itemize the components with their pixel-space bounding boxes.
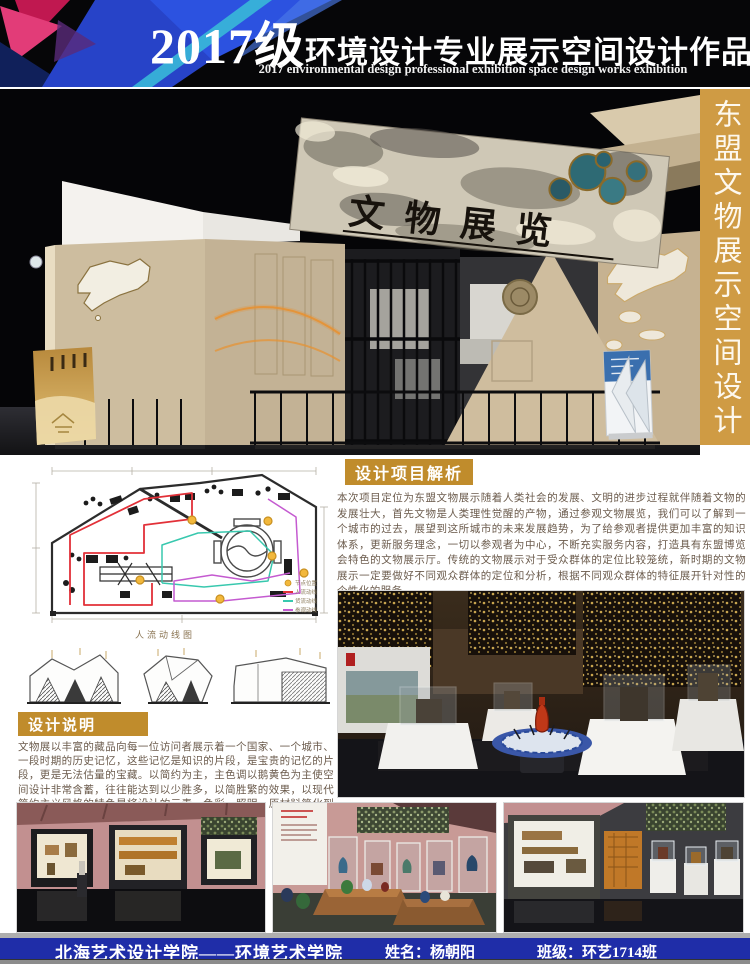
elevation-sketch-2: [136, 646, 216, 710]
analysis-paragraph: 本次项目定位为东盟文物展示随着人类社会的发展、文明的进步过程就伴随着文物的发展壮…: [337, 491, 746, 600]
pedestal-row: [650, 841, 740, 895]
red-text-signboard: [273, 803, 327, 885]
legend-label-magenta: 参观动线: [295, 606, 318, 614]
elevation-sketch-3: [228, 646, 334, 710]
gallery-render-3: [503, 802, 744, 933]
analysis-heading: 设计项目解析: [345, 459, 473, 485]
legend-label-cyan: 货流动线: [295, 597, 318, 605]
description-heading: 设计说明: [18, 712, 148, 736]
vertical-title-bar: 东盟文物展示空间设计: [700, 89, 750, 445]
blue-brochure-stand: [604, 350, 653, 440]
floor-plan-caption: 人流动线图: [20, 628, 310, 641]
header-banner: 2017级环境设计专业展示空间设计作品展 2017 environmental …: [0, 0, 750, 87]
hero-exhibition-render: 文物展览: [0, 89, 700, 455]
legend-label-node: 节点位置: [295, 579, 318, 587]
amber-lit-case: [604, 831, 642, 889]
poster-subtitle: 2017 environmental design professional e…: [200, 62, 746, 77]
round-plaque: [30, 256, 42, 268]
interior-render-main: [337, 590, 745, 798]
bronze-medallion: [503, 280, 537, 314]
poster: 2017级环境设计专业展示空间设计作品展 2017 environmental …: [0, 0, 750, 964]
legend-label-red: 人流动线: [295, 588, 318, 596]
vertical-title-text: 东盟文物展示空间设计: [704, 89, 746, 445]
gold-calligraphy-banner: [33, 347, 96, 445]
lightbox-wall: [508, 815, 600, 899]
analysis-heading-text: 设计项目解析: [355, 460, 463, 484]
circulation-floor-plan: 节点位置 人流动线 货流动线 参观动线: [22, 463, 332, 625]
elevation-sketches: [22, 646, 334, 710]
plan-legend: 节点位置 人流动线 货流动线 参观动线: [283, 579, 318, 614]
gallery-render-2: [272, 802, 497, 933]
elevation-sketch-1: [22, 646, 124, 710]
dimension-lines: [32, 467, 328, 623]
footer-separator-bottom: [0, 959, 750, 964]
gallery-render-1: [16, 802, 266, 933]
description-heading-text: 设计说明: [28, 714, 96, 735]
center-wall: [205, 239, 345, 445]
route-cyan: [162, 531, 274, 587]
